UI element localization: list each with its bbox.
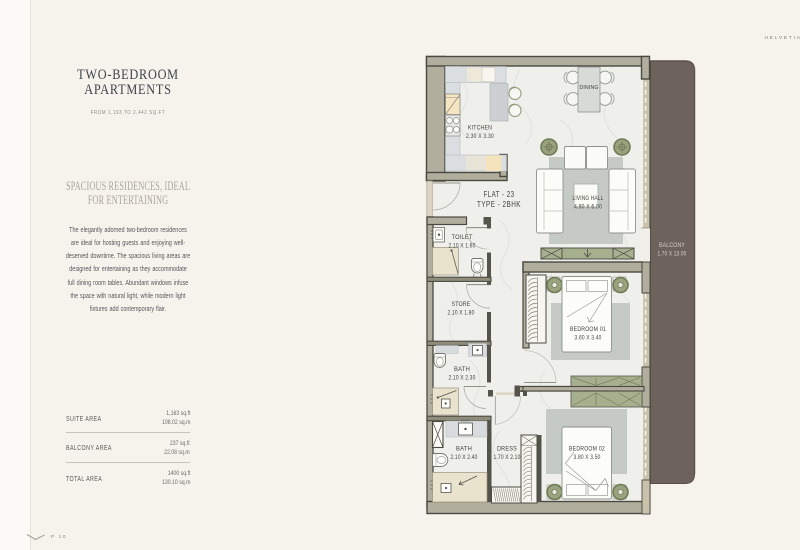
svg-text:STORE: STORE [452, 301, 471, 308]
svg-text:FLAT - 23: FLAT - 23 [484, 190, 515, 199]
svg-text:1.70 X 13.00: 1.70 X 13.00 [658, 252, 687, 258]
svg-text:2.10 X 2.40: 2.10 X 2.40 [451, 454, 478, 461]
svg-text:4.90 X 6.00: 4.90 X 6.00 [574, 204, 602, 211]
svg-text:LIVING HALL: LIVING HALL [573, 195, 604, 202]
svg-text:DRESS: DRESS [497, 446, 517, 453]
svg-text:2.10 X 1.60: 2.10 X 1.60 [449, 243, 476, 250]
svg-text:2.10 X 2.30: 2.10 X 2.30 [449, 375, 476, 382]
svg-text:BALCONY: BALCONY [659, 243, 685, 249]
svg-text:1.70 X 2.10: 1.70 X 2.10 [494, 454, 521, 461]
svg-text:DINING: DINING [580, 85, 599, 91]
svg-text:BEDROOM 02: BEDROOM 02 [569, 446, 605, 453]
svg-text:2.30 X 3.30: 2.30 X 3.30 [466, 133, 494, 140]
svg-text:BATH: BATH [454, 366, 470, 373]
svg-text:TYPE - 2BHK: TYPE - 2BHK [477, 200, 521, 209]
svg-text:BATH: BATH [456, 446, 472, 453]
svg-text:3.80 X 3.50: 3.80 X 3.50 [574, 454, 601, 461]
svg-text:2.10 X 1.80: 2.10 X 1.80 [448, 310, 475, 317]
svg-text:KITCHEN: KITCHEN [468, 125, 492, 132]
svg-text:BEDROOM 01: BEDROOM 01 [570, 326, 606, 333]
svg-text:3.60 X 3.40: 3.60 X 3.40 [575, 335, 602, 342]
